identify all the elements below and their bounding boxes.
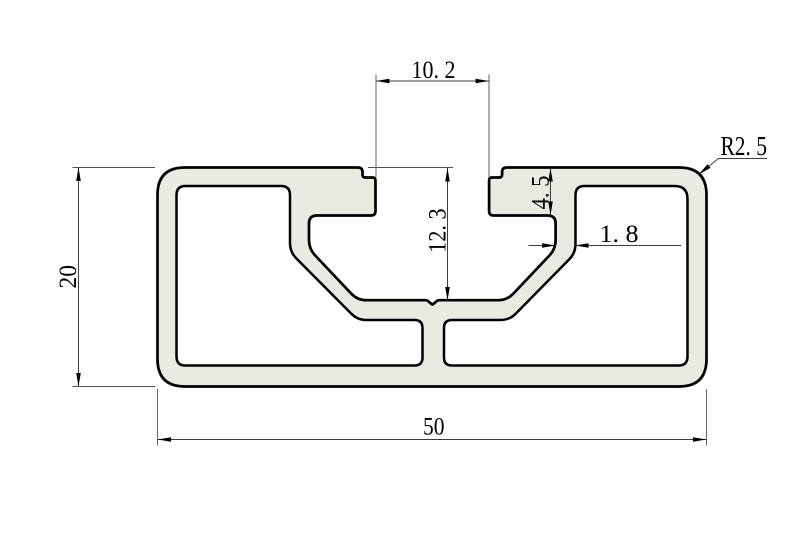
svg-text:R2. 5: R2. 5 (721, 131, 768, 161)
svg-text:50: 50 (423, 414, 445, 441)
svg-text:20: 20 (55, 265, 82, 289)
svg-text:4. 5: 4. 5 (528, 176, 555, 210)
svg-text:1. 8: 1. 8 (600, 221, 639, 248)
svg-text:10. 2: 10. 2 (412, 57, 456, 84)
svg-text:12. 3: 12. 3 (424, 208, 451, 253)
